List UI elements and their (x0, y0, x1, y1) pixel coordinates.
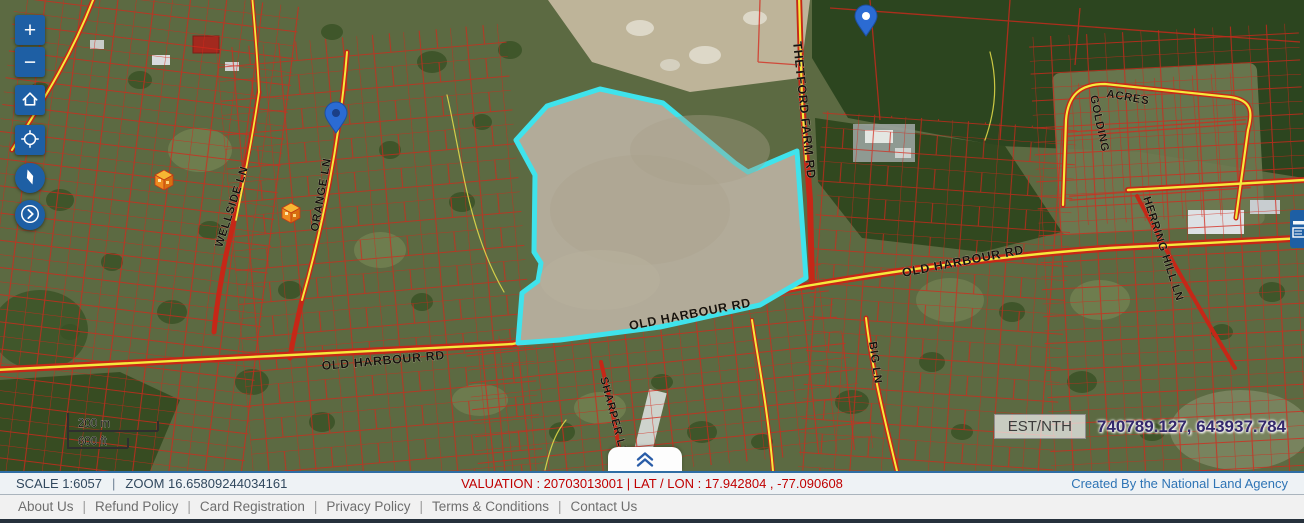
credit-text: Created By the National Land Agency (1071, 476, 1288, 491)
minus-icon: − (24, 52, 36, 73)
legend-icon (1290, 210, 1304, 248)
footer-separator: | (187, 499, 191, 514)
footer-link-refund-policy[interactable]: Refund Policy (95, 499, 178, 514)
scale-bar-metric: 200 m (78, 418, 110, 430)
map-svg: WELLSIDE LN ORANGE LN THETFORD FARM RD G… (0, 0, 1304, 471)
footer-link-terms-conditions[interactable]: Terms & Conditions (432, 499, 549, 514)
status-bar: SCALE 1:6057|ZOOM 16.65809244034161 VALU… (0, 471, 1304, 494)
footer-separator: | (314, 499, 318, 514)
compass-button[interactable] (15, 163, 45, 193)
footer-separator: | (558, 499, 562, 514)
scale-bar-imperial: 600 ft (78, 436, 108, 448)
crosshair-icon (20, 129, 40, 152)
footer-link-contact-us[interactable]: Contact Us (571, 499, 638, 514)
footer-link-privacy-policy[interactable]: Privacy Policy (326, 499, 410, 514)
home-extent-button[interactable] (15, 85, 45, 115)
footer-separator: | (83, 499, 87, 514)
footer-separator: | (419, 499, 423, 514)
footer-link-card-registration[interactable]: Card Registration (200, 499, 305, 514)
chevron-right-circle-icon (19, 203, 41, 228)
expand-panel-button[interactable] (15, 200, 45, 230)
plus-icon: + (24, 20, 36, 41)
app-window: WELLSIDE LN ORANGE LN THETFORD FARM RD G… (0, 0, 1304, 523)
footer-link-about-us[interactable]: About Us (18, 499, 74, 514)
legend-panel-toggle[interactable] (1290, 210, 1304, 248)
map-canvas[interactable]: WELLSIDE LN ORANGE LN THETFORD FARM RD G… (0, 0, 1304, 471)
zoom-out-button[interactable]: − (15, 47, 45, 77)
bottom-panel-collapse-tab[interactable] (608, 447, 682, 471)
zoom-in-button[interactable]: + (15, 15, 45, 45)
locate-button[interactable] (15, 125, 45, 155)
footer-nav: About Us|Refund Policy|Card Registration… (0, 494, 1304, 523)
est-nth-label: EST/NTH (994, 414, 1086, 439)
double-chevron-up-icon (634, 450, 656, 468)
home-icon (20, 89, 40, 112)
compass-icon (20, 167, 40, 190)
coordinate-readout: EST/NTH 740789.127, 643937.784 (994, 414, 1286, 439)
est-nth-value: 740789.127, 643937.784 (1097, 417, 1286, 437)
